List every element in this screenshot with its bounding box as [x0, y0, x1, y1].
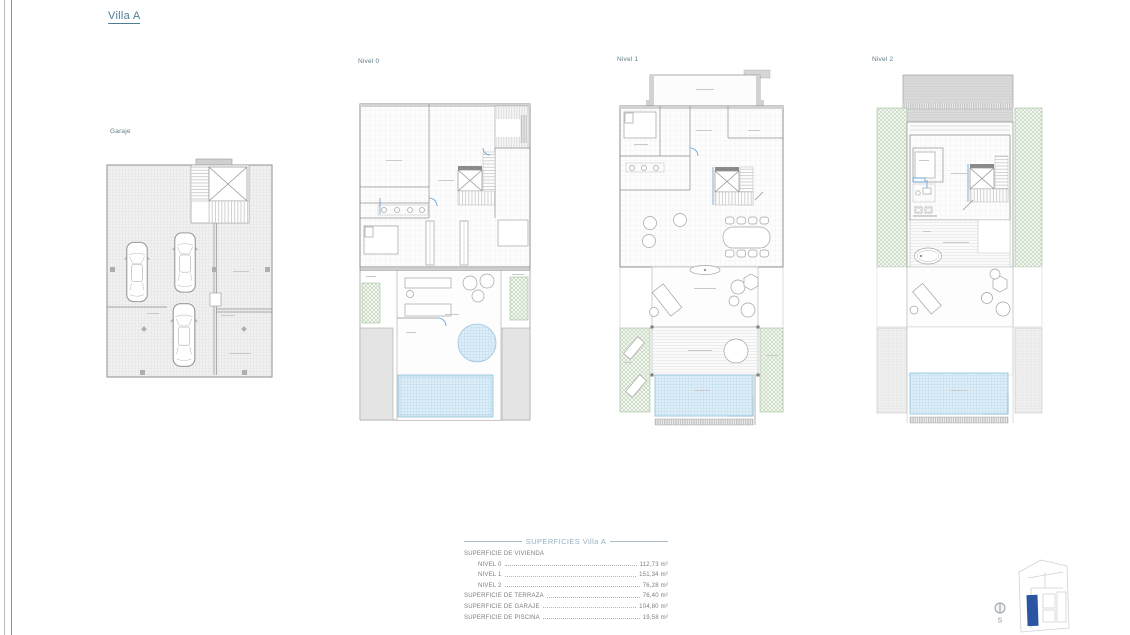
solarium-deck: [910, 220, 1010, 270]
surfaces-table: SUPERFICIES Villa A SUPERFICIE DE VIVIEN…: [464, 537, 668, 621]
compass-south-label: S: [998, 618, 1003, 625]
surfaces-table-title-row: SUPERFICIES Villa A: [464, 537, 668, 546]
surfaces-table-title: SUPERFICIES Villa A: [526, 537, 606, 546]
utility-room: [495, 106, 528, 148]
surface-row: SUPERFICIE DE GARAJE 104,80 m²: [464, 604, 668, 610]
surface-label: NIVEL 0: [478, 562, 502, 568]
stairwell: [191, 165, 249, 223]
nivel0-plan-drawing: [350, 90, 540, 435]
roof: [903, 75, 1013, 122]
sheet-border-line: [11, 0, 12, 635]
pool: [398, 375, 493, 417]
villa-location-marker: [1026, 595, 1038, 626]
surface-row: NIVEL 0 112,73 m²: [464, 562, 668, 568]
dot-leader: [505, 586, 640, 587]
drawing-sheet: Villa A Garaje Nivel 0 Nivel 1 Nivel 2: [0, 0, 1130, 635]
dot-leader: [505, 576, 637, 577]
vegetation-area: [877, 108, 907, 267]
vegetation-area: [362, 283, 380, 323]
surface-row: SUPERFICIE DE TERRAZA 76,40 m²: [464, 593, 668, 599]
surface-label: SUPERFICIE DE PISCINA: [464, 615, 540, 621]
surface-value: 151,34 m²: [639, 572, 668, 578]
dot-leader: [505, 565, 637, 566]
vegetation-area: [510, 277, 528, 320]
surface-label: NIVEL 2: [478, 583, 502, 589]
surface-value: 76,28 m²: [643, 583, 668, 589]
surface-label: SUPERFICIE DE GARAJE: [464, 604, 540, 610]
dot-leader: [543, 618, 640, 619]
surface-label: SUPERFICIE DE TERRAZA: [464, 593, 544, 599]
surface-row: NIVEL 2 76,28 m²: [464, 583, 668, 589]
surface-value: 104,80 m²: [639, 604, 668, 610]
sheet-title: Villa A: [108, 10, 140, 24]
surface-label: NIVEL 1: [478, 572, 502, 578]
title-rule: [610, 541, 668, 542]
dot-leader: [543, 607, 636, 608]
surface-section-label: SUPERFICIE DE VIVIENDA: [464, 551, 544, 557]
surface-value: 19,58 m²: [643, 615, 668, 621]
vegetation-area: [760, 328, 783, 412]
surface-row: SUPERFICIE DE PISCINA 19,58 m²: [464, 615, 668, 621]
sheet-border-line: [4, 0, 5, 635]
car-icon: [125, 242, 150, 301]
garage-plan-label: Garaje: [110, 128, 131, 135]
round-water-feature: [458, 324, 496, 362]
surface-value: 112,73 m²: [640, 562, 668, 568]
surface-row: NIVEL 1 151,34 m²: [464, 572, 668, 578]
bedroom-furniture: [624, 112, 656, 138]
title-rule: [464, 541, 522, 542]
balcony: [646, 75, 764, 106]
car-icon: [173, 233, 198, 292]
vegetation-area: [1015, 108, 1042, 267]
nivel2-plan-drawing: [865, 60, 1050, 434]
surface-value: 76,40 m²: [643, 593, 668, 599]
nivel0-plan-label: Nivel 0: [358, 58, 379, 65]
garage-plan-drawing: [103, 157, 279, 385]
surface-section-row: SUPERFICIE DE VIVIENDA: [464, 551, 668, 557]
vegetation-area: [620, 328, 650, 412]
car-icon: [171, 304, 197, 367]
north-indicator-icon: S: [995, 603, 1005, 625]
nivel1-plan-drawing: [610, 60, 800, 434]
pool: [655, 375, 753, 416]
site-plan-outline: [1019, 560, 1069, 632]
pool: [910, 373, 1008, 414]
site-locator: S: [983, 558, 1071, 635]
stairwell: [715, 167, 753, 205]
dot-leader: [547, 597, 640, 598]
